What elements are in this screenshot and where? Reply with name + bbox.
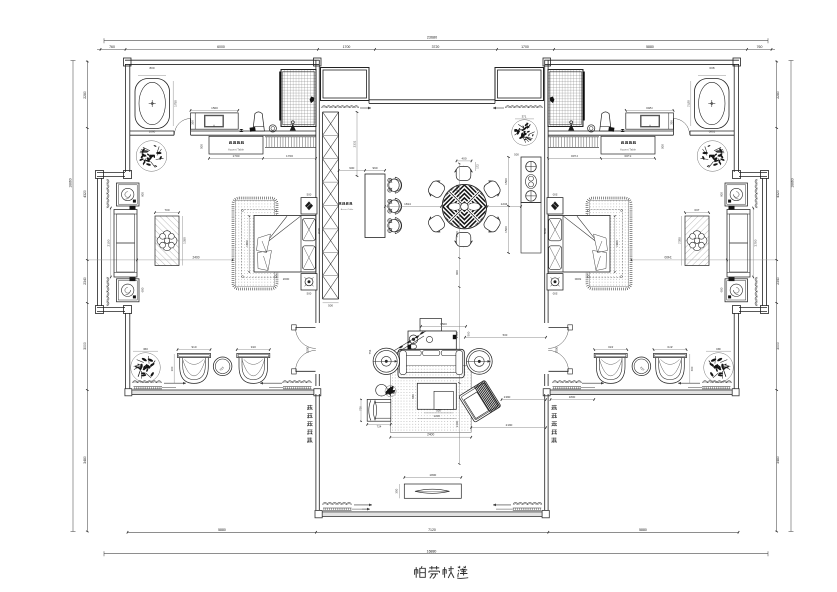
svg-text:3000: 3000	[776, 342, 780, 350]
svg-text:1060: 1060	[149, 130, 156, 134]
svg-text:990: 990	[372, 166, 377, 170]
svg-text:Accent Table: Accent Table	[228, 148, 244, 152]
svg-text:300: 300	[190, 120, 194, 125]
svg-text:5880: 5880	[646, 45, 654, 49]
svg-text:500: 500	[200, 144, 204, 149]
svg-text:500: 500	[503, 333, 508, 337]
svg-text:3000: 3000	[83, 342, 87, 350]
svg-text:2340: 2340	[83, 277, 87, 285]
svg-text:1800: 1800	[245, 240, 249, 247]
svg-text:1200: 1200	[434, 414, 441, 418]
svg-text:800: 800	[149, 66, 154, 70]
svg-text:1800: 1800	[569, 395, 576, 399]
svg-text:2280: 2280	[776, 91, 780, 99]
svg-text:700: 700	[164, 208, 169, 212]
svg-text:500: 500	[328, 304, 333, 308]
svg-text:600: 600	[141, 287, 145, 292]
svg-text:1800: 1800	[429, 473, 436, 477]
svg-text:760: 760	[757, 45, 763, 49]
svg-text:500: 500	[436, 409, 441, 413]
svg-text:1500: 1500	[440, 322, 447, 326]
svg-text:1700: 1700	[233, 154, 240, 158]
svg-text:2400: 2400	[427, 433, 434, 437]
svg-text:1700: 1700	[286, 154, 293, 158]
svg-text:7120: 7120	[428, 528, 436, 532]
svg-text:371: 371	[522, 115, 527, 119]
svg-text:500: 500	[467, 331, 471, 336]
svg-text:500: 500	[307, 192, 312, 196]
svg-text:1700: 1700	[521, 45, 529, 49]
svg-text:6000: 6000	[217, 45, 225, 49]
svg-text:1000: 1000	[306, 346, 310, 353]
svg-text:3480: 3480	[776, 456, 780, 464]
svg-text:1814: 1814	[404, 202, 411, 206]
svg-text:18860: 18860	[69, 178, 73, 187]
svg-text:2280: 2280	[83, 91, 87, 99]
svg-text:3480: 3480	[83, 456, 87, 464]
svg-text:18860: 18860	[790, 178, 794, 187]
svg-text:100: 100	[170, 366, 174, 371]
svg-text:5880: 5880	[639, 528, 647, 532]
svg-text:1350: 1350	[183, 237, 187, 244]
svg-text:2331: 2331	[353, 140, 357, 147]
svg-text:754: 754	[368, 349, 372, 354]
svg-text:900: 900	[349, 166, 354, 170]
svg-text:2190: 2190	[506, 423, 513, 427]
svg-text:724: 724	[377, 425, 382, 429]
svg-text:1750: 1750	[173, 100, 177, 107]
svg-text:4320: 4320	[776, 190, 780, 198]
svg-text:360: 360	[143, 347, 148, 351]
svg-text:1500: 1500	[211, 106, 218, 110]
svg-text:2000: 2000	[283, 277, 290, 281]
svg-text:500: 500	[514, 152, 519, 156]
svg-text:1500: 1500	[455, 184, 459, 191]
svg-text:3720: 3720	[432, 45, 440, 49]
svg-text:Accent Table: Accent Table	[341, 208, 354, 211]
svg-text:23680: 23680	[427, 36, 437, 40]
svg-text:600: 600	[141, 192, 145, 197]
svg-text:720: 720	[359, 406, 363, 411]
svg-text:910: 910	[251, 345, 256, 349]
svg-text:1390: 1390	[504, 395, 511, 399]
svg-text:760: 760	[109, 45, 115, 49]
svg-text:400: 400	[461, 157, 466, 161]
svg-text:900: 900	[455, 270, 459, 275]
svg-text:1500: 1500	[504, 226, 508, 233]
svg-text:4320: 4320	[83, 190, 87, 198]
svg-text:Accent Table: Accent Table	[620, 148, 636, 152]
svg-text:650: 650	[411, 394, 415, 399]
svg-text:2100: 2100	[107, 239, 111, 246]
svg-text:1500: 1500	[455, 231, 459, 238]
svg-text:1500: 1500	[504, 178, 508, 185]
svg-text:16880: 16880	[427, 549, 437, 553]
svg-text:1234: 1234	[501, 202, 508, 206]
svg-text:2400: 2400	[192, 255, 199, 259]
svg-text:350: 350	[395, 488, 399, 493]
svg-text:172: 172	[476, 164, 480, 169]
svg-text:500: 500	[307, 291, 312, 295]
svg-text:910: 910	[191, 345, 196, 349]
svg-text:2340: 2340	[776, 277, 780, 285]
svg-text:1700: 1700	[343, 45, 351, 49]
svg-text:2000: 2000	[317, 227, 321, 234]
svg-text:5880: 5880	[218, 528, 226, 532]
